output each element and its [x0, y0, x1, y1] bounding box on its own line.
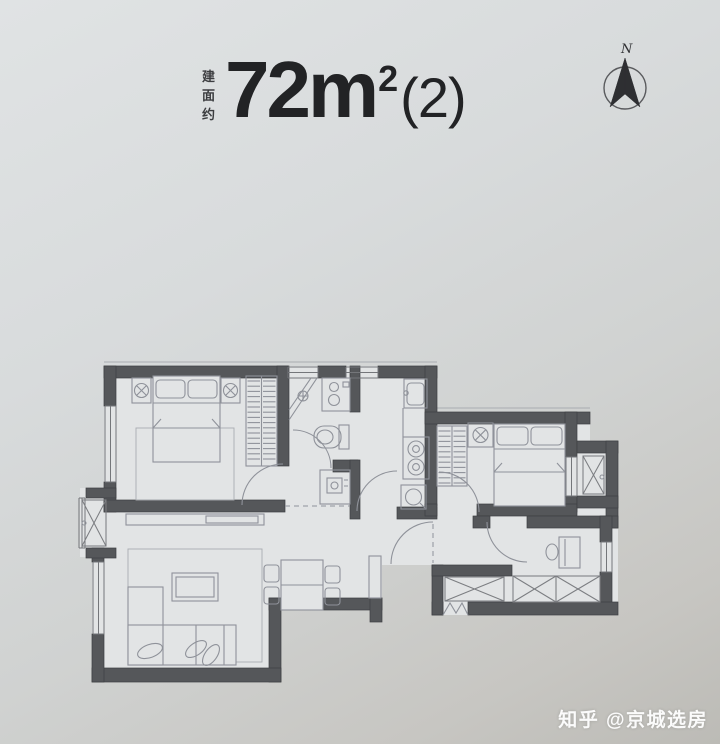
- bed-2: [494, 424, 565, 506]
- watermark: 知乎 @京城选房: [558, 705, 708, 732]
- compass-north-label: N: [620, 42, 633, 57]
- floorplan-page: 建 面 约 72m 2 (2) N: [0, 0, 720, 744]
- double-bed: [153, 376, 220, 462]
- coffee-table: [172, 573, 218, 601]
- floor-plan: N: [0, 0, 720, 744]
- dining-table: [281, 560, 323, 610]
- north-compass-icon: N: [604, 42, 646, 109]
